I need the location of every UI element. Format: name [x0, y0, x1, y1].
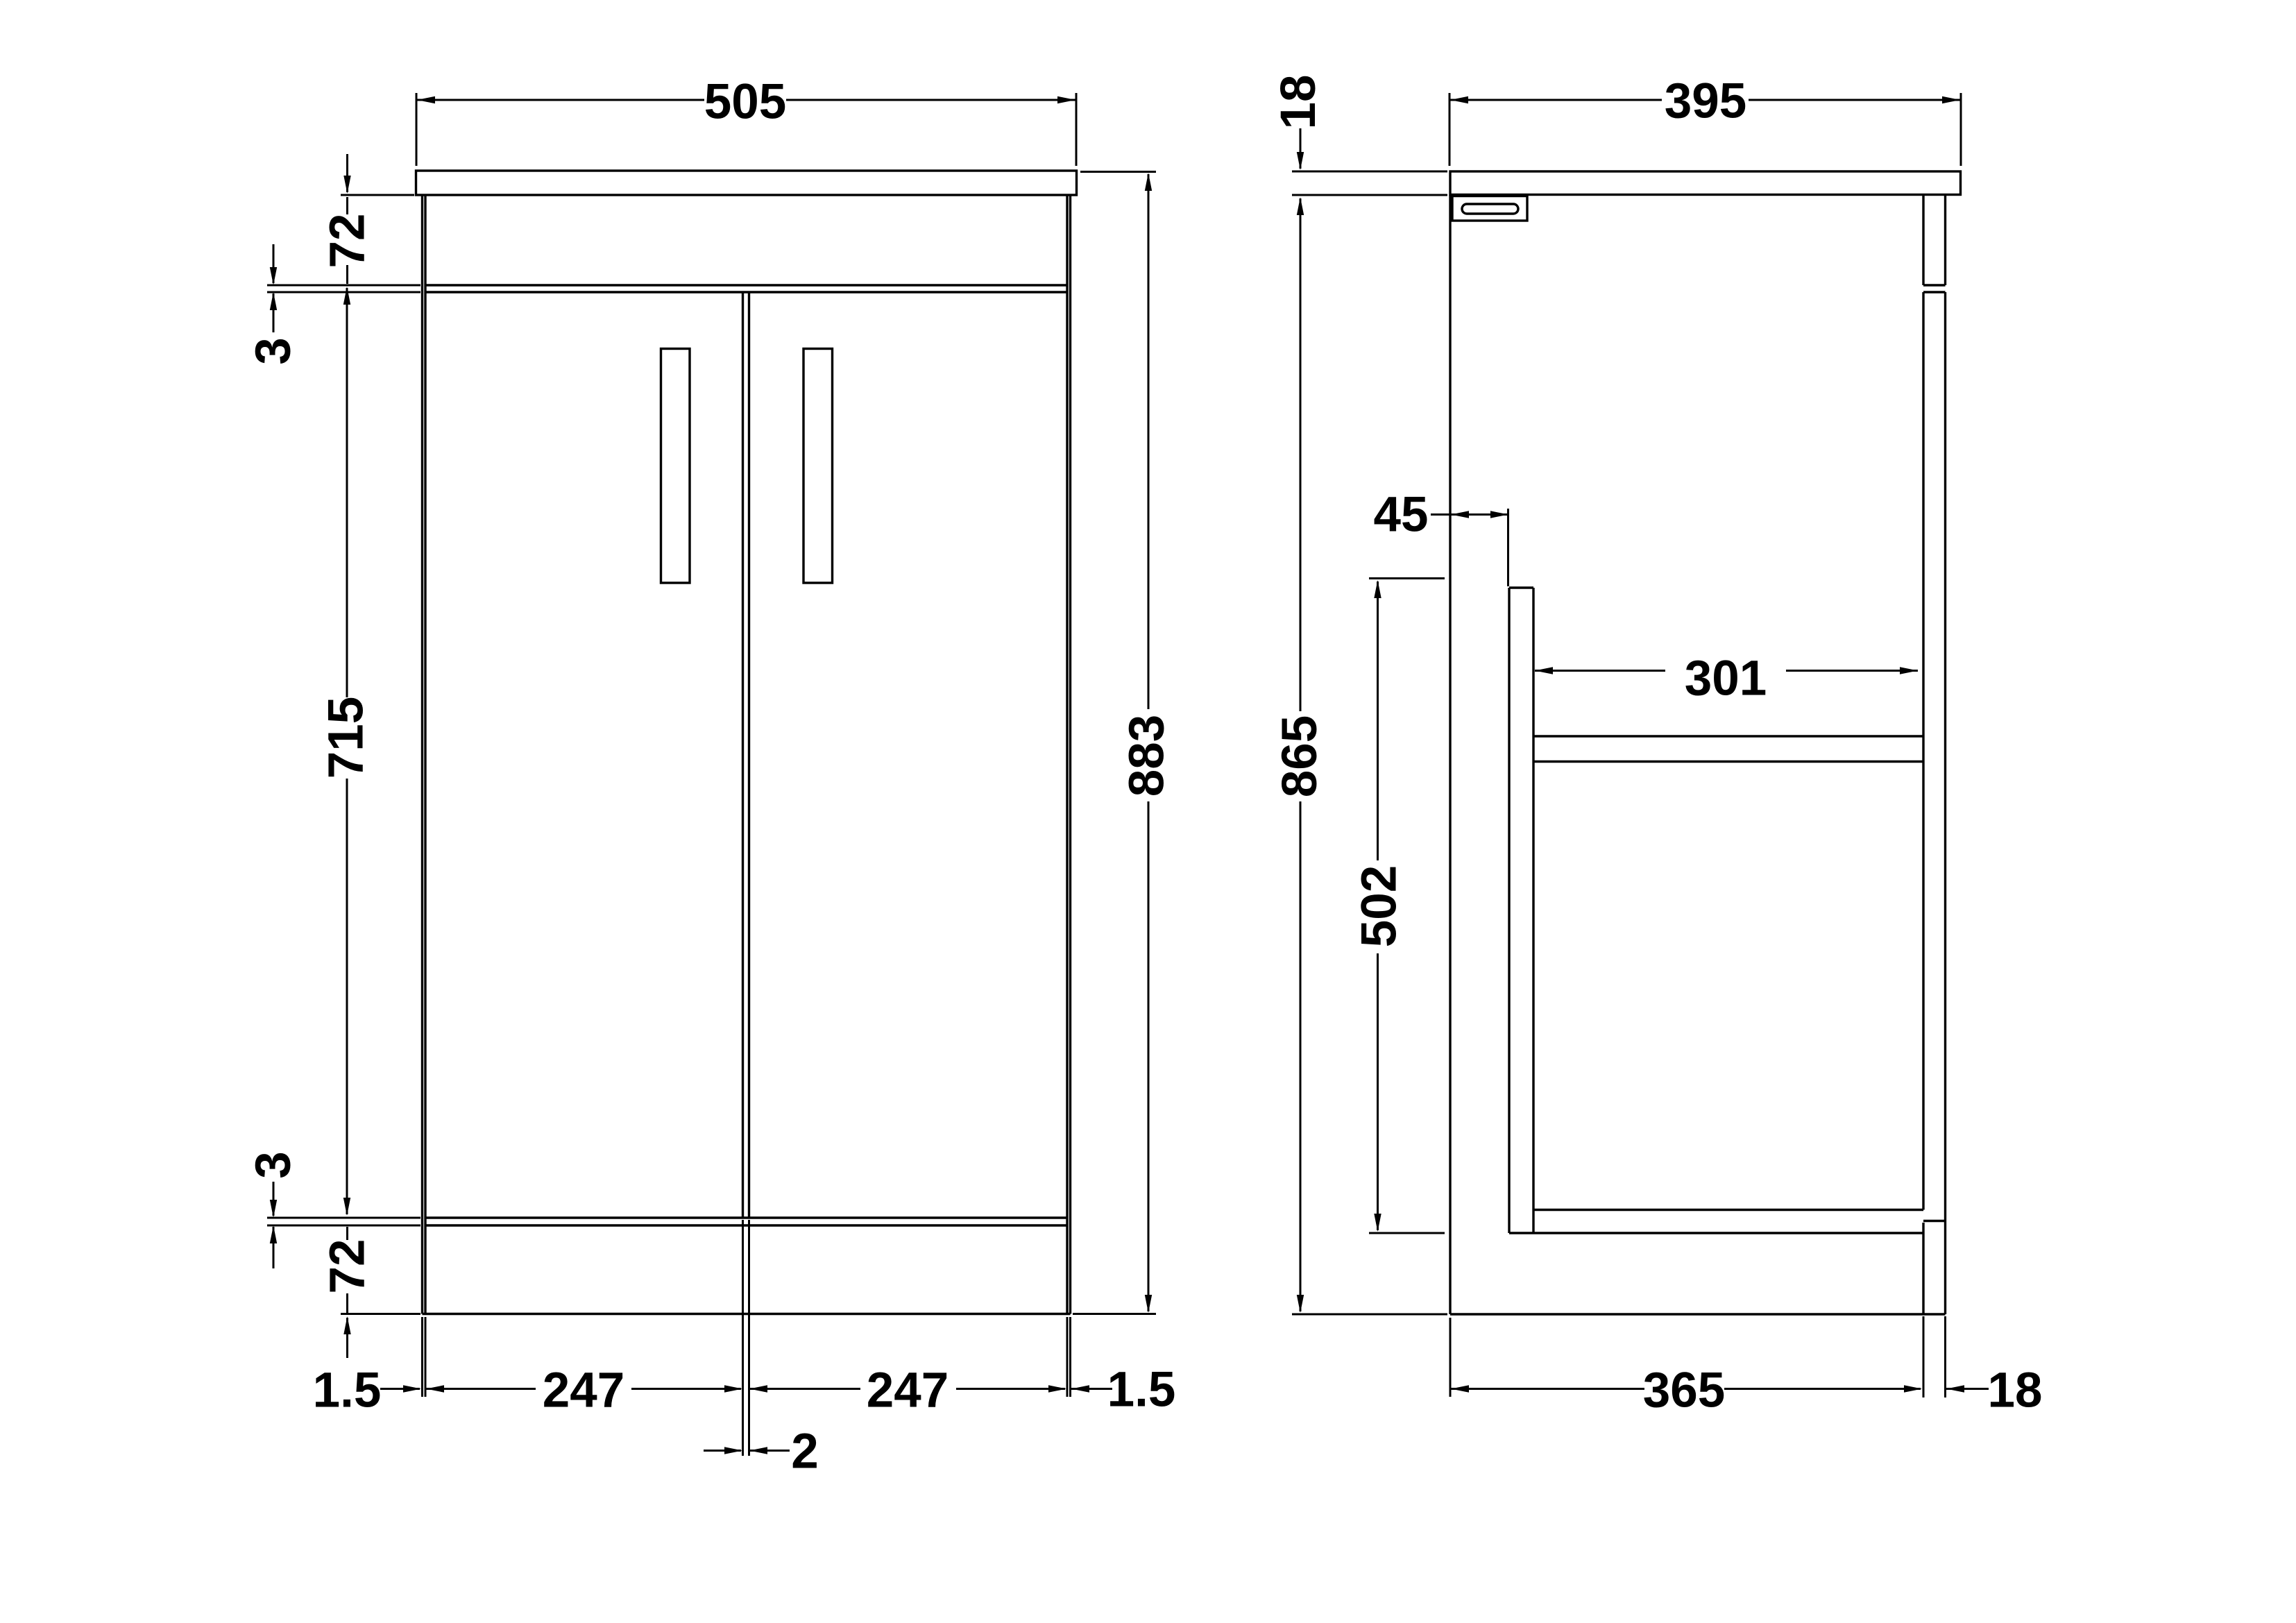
- svg-text:247: 247: [543, 1363, 624, 1418]
- svg-text:3: 3: [246, 337, 301, 365]
- svg-text:865: 865: [1273, 715, 1327, 797]
- svg-text:1.5: 1.5: [1107, 1363, 1176, 1418]
- svg-text:72: 72: [321, 1239, 375, 1294]
- svg-text:883: 883: [1120, 715, 1175, 797]
- svg-text:247: 247: [867, 1363, 949, 1418]
- svg-text:1.5: 1.5: [313, 1363, 382, 1418]
- svg-text:502: 502: [1352, 865, 1407, 947]
- svg-text:365: 365: [1643, 1363, 1725, 1418]
- svg-text:505: 505: [704, 75, 786, 130]
- svg-text:72: 72: [321, 214, 375, 269]
- svg-text:301: 301: [1685, 652, 1767, 706]
- svg-text:715: 715: [319, 697, 374, 779]
- svg-text:395: 395: [1665, 74, 1746, 129]
- svg-text:3: 3: [246, 1151, 301, 1179]
- svg-text:18: 18: [1988, 1363, 2043, 1418]
- svg-text:2: 2: [791, 1425, 819, 1479]
- svg-text:45: 45: [1374, 488, 1429, 543]
- svg-text:18: 18: [1271, 75, 1326, 130]
